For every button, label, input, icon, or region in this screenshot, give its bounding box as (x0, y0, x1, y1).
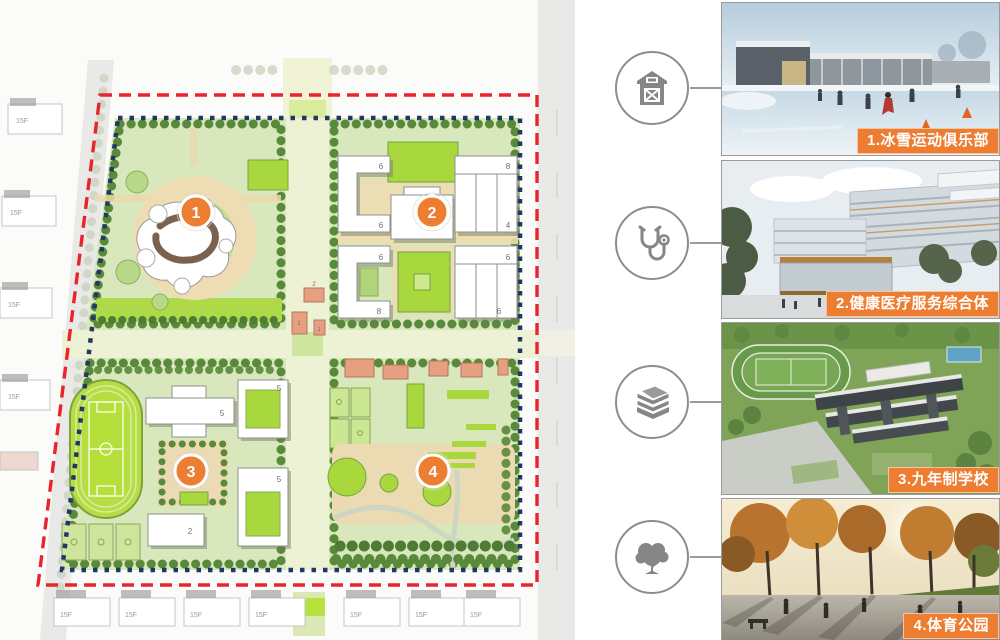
photo-ice-sports-club: 1.冰雪运动俱乐部 (721, 2, 1000, 156)
aerial-track (732, 345, 850, 399)
tree-icon (632, 537, 672, 577)
connector-line-1 (690, 87, 721, 89)
context-floor-label: 15F (10, 210, 22, 217)
floor-label: 6 (379, 162, 384, 171)
connector-line-2 (690, 242, 721, 244)
barn-icon (632, 68, 672, 108)
stethoscope-icon (632, 223, 672, 263)
photo-sports-park: 4.体育公园 (721, 498, 1000, 640)
floor-label: 4 (506, 221, 511, 230)
photo-label-1: 1.冰雪运动俱乐部 (857, 128, 999, 154)
pool (947, 347, 981, 362)
basketball-courts (62, 524, 140, 560)
floor-label: 8 (377, 307, 382, 316)
photo-medical-complex: 2.健康医疗服务综合体 (721, 160, 1000, 319)
context-floor-label: 15F (190, 612, 202, 619)
context-floor-label: 15F (60, 612, 72, 619)
context-floor-label: 15F (8, 394, 20, 401)
plan-marker-1: 1 (177, 193, 215, 231)
photo-label-3: 3.九年制学校 (888, 467, 999, 493)
floor-label: 5 (277, 475, 282, 484)
floor-label: 6 (506, 253, 511, 262)
svg-text:3: 3 (187, 464, 196, 481)
plan-marker-2: 2 (413, 193, 451, 231)
plan-marker-3: 3 (172, 452, 210, 490)
legend-circle-park (615, 520, 689, 594)
floor-label: 6 (379, 221, 384, 230)
photo-label-2: 2.健康医疗服务综合体 (826, 291, 999, 317)
context-floor-label: 15F (255, 612, 267, 619)
connector-line-3 (690, 401, 721, 403)
presentation-board: 6 6 8 4 6 8 6 6 (0, 0, 1000, 640)
context-floor-label: 15F (470, 612, 482, 619)
photo-label-4: 4.体育公园 (903, 613, 999, 639)
connector-line-4 (690, 556, 721, 558)
legend-circle-school (615, 365, 689, 439)
floor-label: 6 (497, 307, 502, 316)
svg-text:2: 2 (428, 205, 437, 222)
context-floor-label: 15F (415, 612, 427, 619)
medical-quadrant-detail: 6 6 8 4 6 8 6 6 (338, 142, 520, 322)
floor-label: 5 (220, 409, 225, 418)
context-floor-label: 15F (8, 302, 20, 309)
photo-school-aerial: 3.九年制学校 (721, 322, 1000, 495)
books-icon (631, 381, 673, 423)
floor-label: 8 (506, 162, 511, 171)
legend-circle-ice-club (615, 51, 689, 125)
svg-text:4: 4 (429, 464, 438, 481)
context-floor-label: 15F (125, 612, 137, 619)
legend-circle-medical (615, 206, 689, 280)
context-floor-label: 15F (350, 612, 362, 619)
plan-marker-4: 4 (414, 452, 452, 490)
floor-label: 6 (379, 253, 384, 262)
svg-text:1: 1 (192, 205, 201, 222)
floor-label: 2 (188, 527, 193, 536)
floor-label: 5 (277, 384, 282, 393)
master-plan: 6 6 8 4 6 8 6 6 (0, 0, 575, 640)
context-floor-label: 15F (16, 118, 28, 125)
